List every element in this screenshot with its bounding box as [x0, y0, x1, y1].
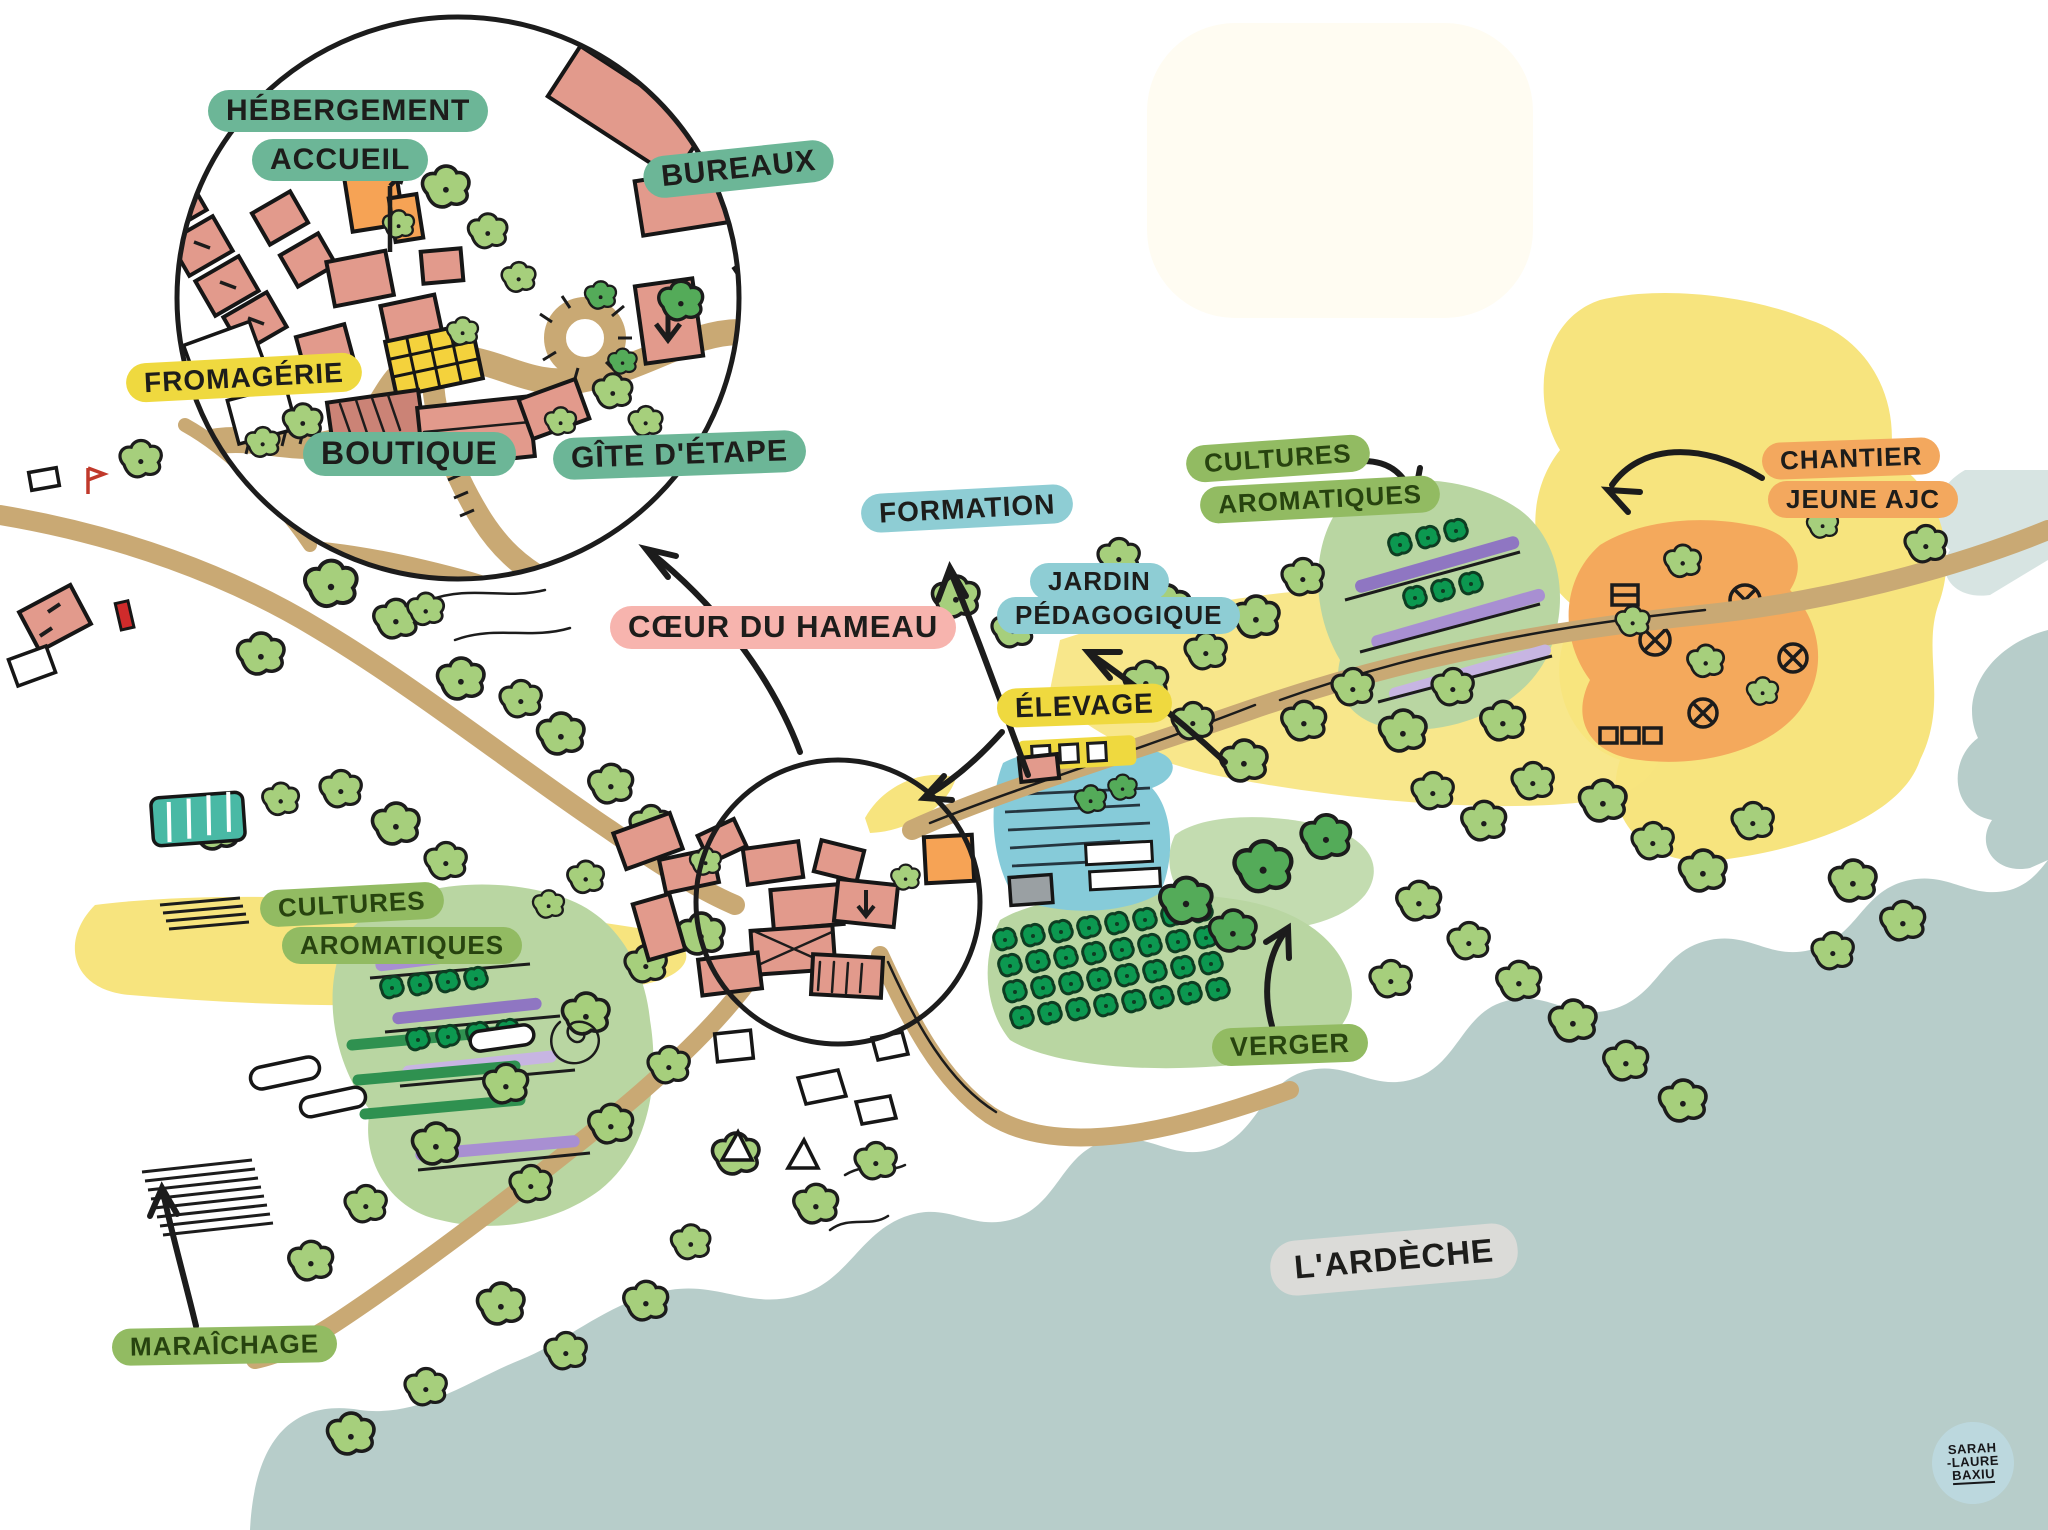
label-accueil: ACCUEIL	[252, 139, 428, 181]
label-hebergement: HÉBERGEMENT	[208, 90, 488, 132]
left-farm-sketch	[8, 468, 134, 686]
label-jeune-ajc: JEUNE AJC	[1768, 481, 1958, 518]
label-coeur-du-hameau: CŒUR DU HAMEAU	[610, 606, 956, 649]
label-verger: VERGER	[1211, 1023, 1368, 1067]
hand-drawn-map: HÉBERGEMENT ACCUEIL BUREAUX FROMAGÉRIE B…	[0, 0, 2048, 1530]
label-boutique: BOUTIQUE	[303, 432, 516, 476]
label-maraichage: MARAÎCHAGE	[112, 1325, 338, 1366]
cream-block	[1147, 23, 1533, 318]
label-aromatiques-left: AROMATIQUES	[282, 927, 522, 964]
label-pedagogique: PÉDAGOGIQUE	[997, 597, 1240, 634]
label-elevage: ÉLEVAGE	[996, 683, 1172, 728]
label-jardin: JARDIN	[1030, 563, 1169, 600]
map-illustration	[0, 0, 2048, 1530]
label-chantier: CHANTIER	[1761, 437, 1941, 480]
signature-line3: BAXIU	[1952, 1467, 1996, 1485]
label-gite-detape: GÎTE D'ÉTAPE	[552, 430, 806, 480]
